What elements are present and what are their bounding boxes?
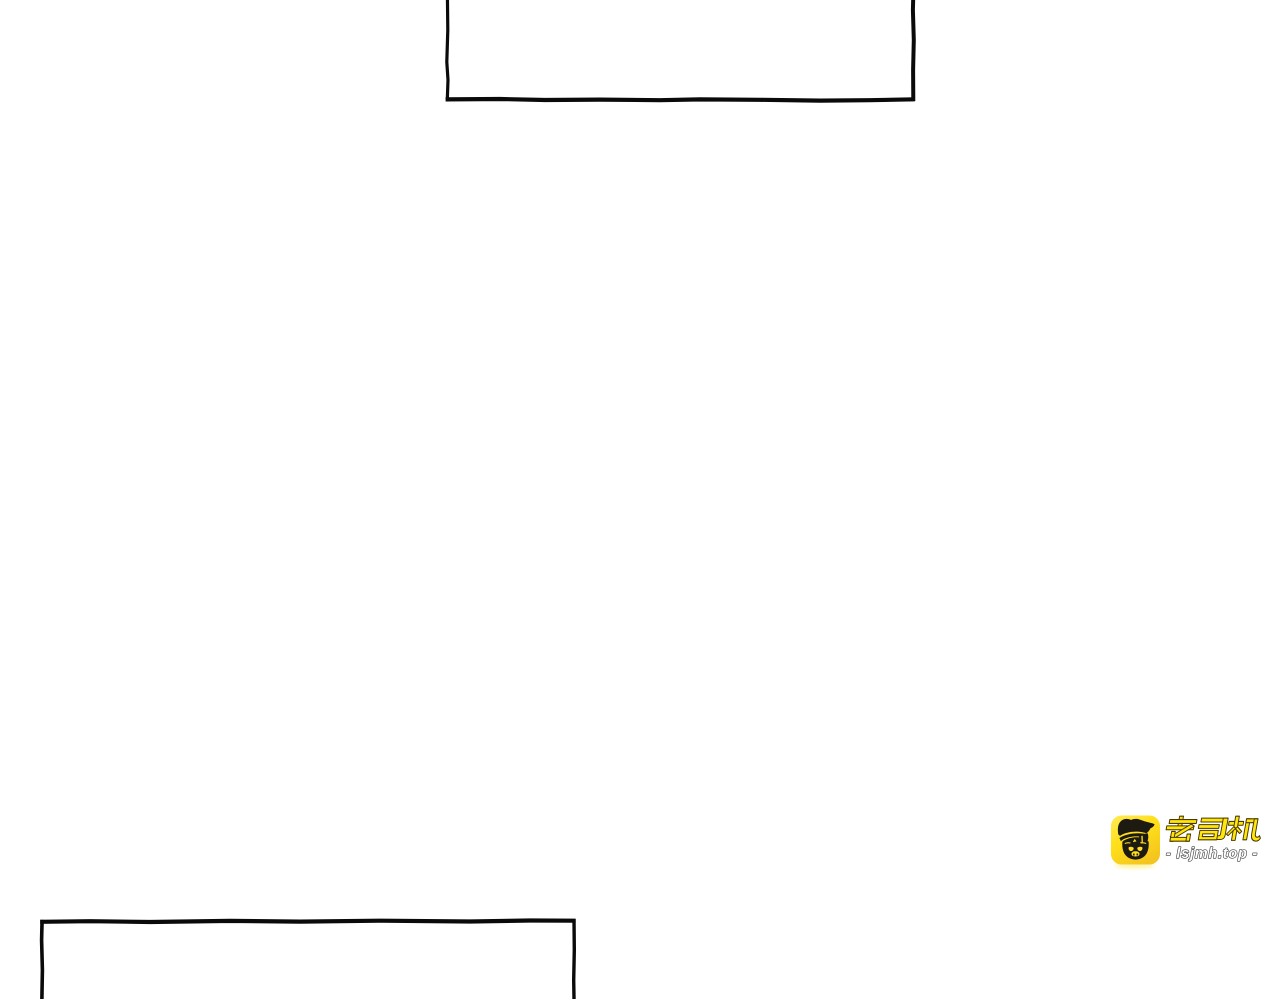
svg-text:- lsjmh.top -: - lsjmh.top - (1166, 846, 1258, 862)
